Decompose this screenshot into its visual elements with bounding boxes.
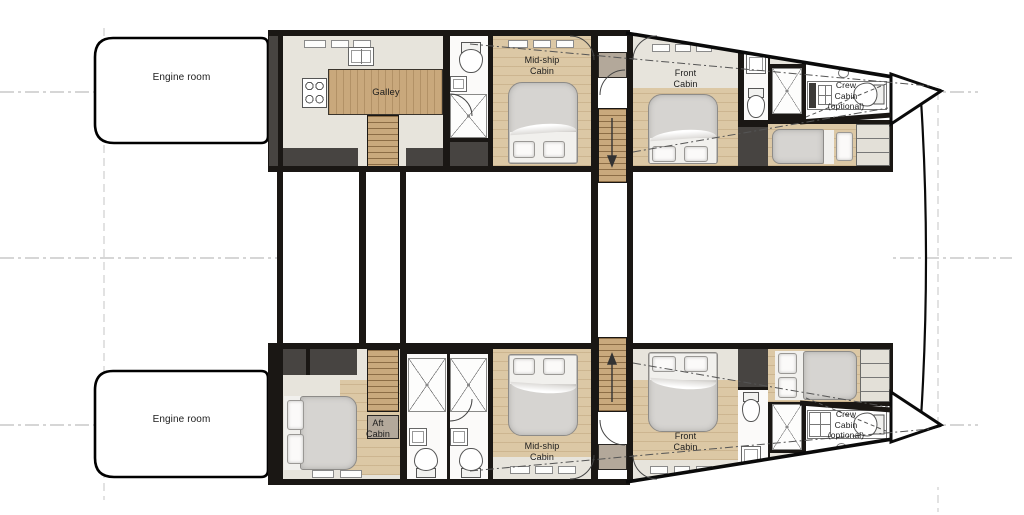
stairs-galley [367,115,399,167]
storage-locker [450,142,488,166]
bridgedeck-void [283,172,359,343]
corridor-floor [770,36,802,64]
bridgedeck-void [406,172,591,343]
storage-locker [283,349,357,375]
corridor-floor [770,453,802,479]
stove [302,78,327,108]
bed-forward-bottom [803,351,857,400]
deck-hatch [558,466,576,474]
deck-hatch [510,466,530,474]
storage-locker [738,349,768,387]
engine-room-top-outline [95,38,268,143]
midship-cabin-top-label: Mid-ship Cabin [493,55,591,77]
deck-hatch [696,44,712,52]
bridgedeck-void [633,172,893,343]
toilet [741,392,761,422]
sink [746,54,766,74]
crew-cabin-top-label: Crew Cabin (optional) [810,80,882,112]
deck-hatch [652,44,670,52]
sink [450,76,467,92]
storage-locker [406,148,443,166]
shower [772,404,802,450]
catamaran-floor-plan: Engine room Engine room Galley Mid-ship … [0,0,1024,515]
bed-linen [824,130,834,164]
shower [450,358,487,412]
deck-hatch [650,466,668,474]
deck-hatch [304,40,326,48]
pillow [287,400,304,430]
pillow [543,141,565,158]
crew-cabin-bottom-label: Crew Cabin (optional) [810,409,882,441]
front-cabin-top-label: Front Cabin [633,68,738,90]
deck-hatch [312,470,334,478]
storage-locker [269,36,278,166]
faucet [838,68,849,78]
galley-sink-divider [361,49,362,64]
faucet [836,443,847,453]
storage-locker [738,127,768,166]
pillow [287,434,304,464]
pillow [652,356,676,372]
deck-hatch [340,470,362,478]
companionway-port [366,172,400,343]
landing [598,444,627,470]
pillow [513,358,535,375]
midship-cabin-bottom-label: Mid-ship Cabin [493,441,591,463]
companionway-starboard [598,166,627,343]
engine-room-top-label: Engine room [95,72,268,83]
deck-hatch [675,44,691,52]
stairs-aft-cabin [367,349,399,412]
deck-hatch [674,466,690,474]
deck-hatch [696,466,712,474]
galley-label: Galley [330,87,442,98]
deck-hatch [533,40,551,48]
shower [450,94,487,138]
toilet [413,448,439,478]
bed-forward-top [772,129,824,164]
cabinet [860,349,890,402]
toilet [458,42,484,73]
pillow [684,356,708,372]
shower [772,68,802,114]
deck-hatch [508,40,528,48]
pillow [543,358,565,375]
sink [741,446,761,466]
aft-cabin-label: Aft Cabin [349,418,407,440]
pillow [836,132,853,161]
pillow [778,377,797,398]
cabinet [856,124,890,166]
landing [598,52,627,78]
stairs-starboard-bottom [598,337,627,412]
deck-hatch [331,40,349,48]
storage-locker [283,148,358,166]
wall [306,349,310,375]
sink [409,428,427,446]
shower [408,358,446,412]
foredeck-curve [921,100,926,418]
engine-room-bottom-label: Engine room [95,414,268,425]
deck-hatch [556,40,574,48]
pillow [652,146,676,162]
deck-hatch [535,466,553,474]
stairs-starboard-top [598,108,627,183]
pillow [778,353,797,374]
pillow [513,141,535,158]
front-cabin-bottom-label: Front Cabin [633,431,738,453]
toilet [746,88,766,118]
pillow [684,146,708,162]
sink [450,428,468,446]
toilet [458,448,484,478]
wall [591,30,598,485]
